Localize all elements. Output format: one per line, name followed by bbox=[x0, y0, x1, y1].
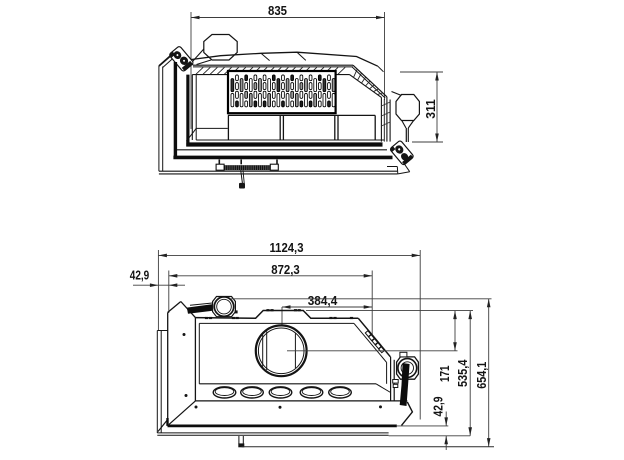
svg-text:835: 835 bbox=[268, 4, 287, 18]
svg-text:535,4: 535,4 bbox=[456, 360, 470, 388]
svg-text:872,3: 872,3 bbox=[271, 263, 300, 277]
svg-text:42,9: 42,9 bbox=[130, 269, 150, 283]
svg-text:384,4: 384,4 bbox=[308, 294, 338, 308]
svg-text:171: 171 bbox=[438, 366, 452, 383]
svg-text:42,9: 42,9 bbox=[431, 396, 445, 416]
svg-text:654,1: 654,1 bbox=[475, 362, 489, 389]
svg-text:311: 311 bbox=[424, 99, 438, 119]
svg-text:1124,3: 1124,3 bbox=[270, 241, 304, 255]
